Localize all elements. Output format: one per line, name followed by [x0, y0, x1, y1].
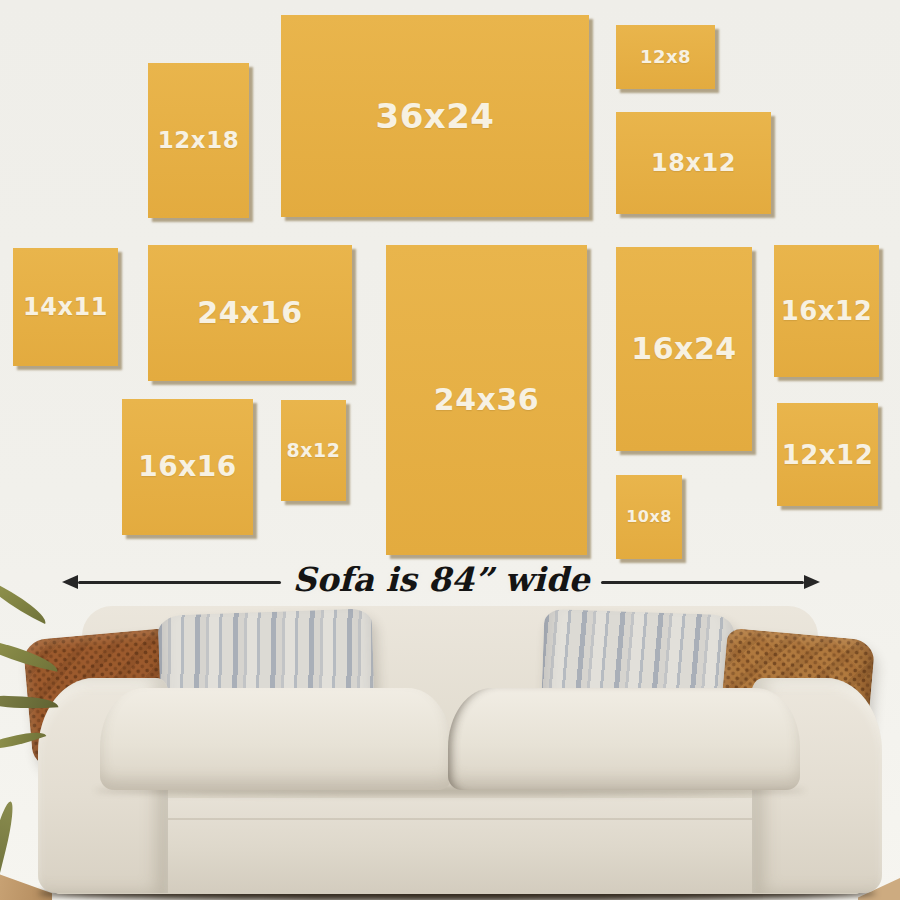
frame-18x12: 18x12: [616, 112, 771, 214]
frame-24x16: 24x16: [148, 245, 352, 381]
frame-size-label: 16x16: [138, 453, 237, 481]
frame-16x24: 16x24: [616, 247, 752, 451]
seat-cushion-left: [100, 688, 452, 790]
frame-size-label: 8x12: [287, 441, 341, 460]
frame-size-label: 12x8: [640, 48, 691, 66]
frame-size-label: 10x8: [626, 509, 672, 525]
sofa-base-seam: [62, 818, 854, 820]
frame-12x8: 12x8: [616, 25, 715, 89]
frame-10x8: 10x8: [616, 475, 682, 559]
frame-size-label: 12x18: [158, 129, 239, 152]
frame-size-label: 14x11: [23, 295, 108, 319]
frame-8x12: 8x12: [281, 400, 346, 501]
frame-24x36: 24x36: [386, 245, 587, 555]
frame-12x12: 12x12: [777, 403, 878, 506]
arrow-left-icon: [62, 575, 78, 589]
frame-size-label: 24x16: [197, 298, 302, 328]
frame-size-label: 18x12: [651, 151, 736, 175]
frame-size-label: 12x12: [782, 442, 874, 468]
frame-16x12: 16x12: [774, 245, 879, 377]
frame-size-label: 36x24: [375, 99, 494, 133]
frame-14x11: 14x11: [13, 248, 118, 366]
sofa-width-dimension: Sofa is 84” wide: [62, 561, 820, 603]
plant-leaf: [0, 579, 52, 624]
frame-36x24: 36x24: [281, 15, 589, 217]
sofa-width-label: Sofa is 84” wide: [281, 560, 602, 599]
dimension-line-right: [601, 581, 804, 584]
frame-size-label: 16x12: [781, 298, 873, 324]
frame-size-label: 16x24: [631, 334, 736, 364]
frame-12x18: 12x18: [148, 63, 249, 218]
dimension-line-left: [78, 581, 281, 584]
frame-16x16: 16x16: [122, 399, 253, 535]
arrow-right-icon: [804, 575, 820, 589]
frame-size-label: 24x36: [434, 385, 539, 415]
seat-cushion-right: [448, 688, 800, 790]
wall-art-size-guide: 12x1836x2412x818x1214x1124x1624x3616x241…: [0, 0, 900, 900]
